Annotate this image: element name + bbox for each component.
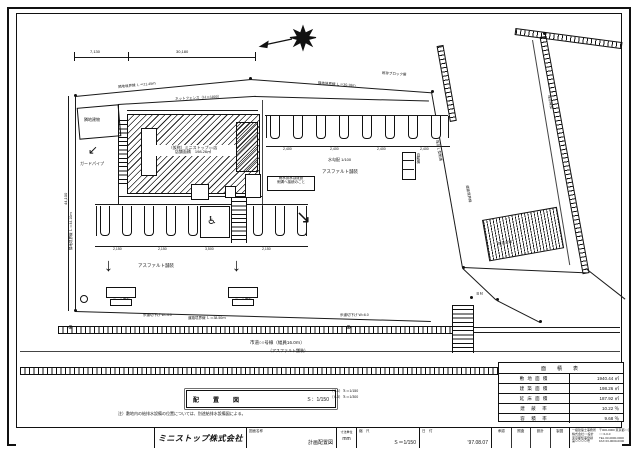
dimension-label: 2,400 xyxy=(283,148,292,152)
pole-sign-symbol xyxy=(80,295,88,303)
vending-machine xyxy=(402,152,416,180)
legend-footnote: 注）敷地内の給排水設備の位置については、別途給排水設備図による。 xyxy=(118,412,246,416)
pole-sign-base xyxy=(232,299,254,306)
boundary-point xyxy=(539,320,542,323)
parking-stall-divider xyxy=(166,206,176,236)
cell-label: 日 付 xyxy=(422,429,433,434)
vending-divider xyxy=(402,160,414,161)
row-label: 建 築 面 積 xyxy=(499,384,570,393)
flow-arrow-icon: ↓ xyxy=(232,256,241,274)
lot-divider-line xyxy=(262,100,263,212)
cell-value: Ｓ＝1/150 xyxy=(393,439,416,446)
boundary-point xyxy=(462,266,465,269)
parking-stall-divider xyxy=(362,116,372,139)
curb-line xyxy=(468,327,620,328)
dimension-line xyxy=(74,57,255,58)
dimension-label: 2,400 xyxy=(377,148,386,152)
legend-scale-note: （Ａ3）Ｓ＝1/300 xyxy=(330,396,358,400)
row-value: 1940.44 ㎡ xyxy=(570,374,623,383)
parking-stall-divider xyxy=(144,206,154,236)
boundary-line xyxy=(75,96,76,312)
survey-mark-icon: ⊕ xyxy=(68,325,73,331)
drawing-name-cell: 図面名称 計画配置図 xyxy=(247,428,337,448)
parking-stall-divider xyxy=(122,206,132,236)
curbcut-label: 歩道切下げ W=4.0 xyxy=(143,314,172,318)
dimension-label: 30,180 xyxy=(176,50,188,54)
paving-label: アスファルト舗装 xyxy=(138,264,174,269)
drainage-note-line: 側溝へ接続のこと xyxy=(268,181,314,185)
parking-stall-divider xyxy=(431,116,441,139)
parking-back-line xyxy=(95,204,308,205)
dimension-tick xyxy=(74,52,75,61)
office-line: 第００００号 xyxy=(572,440,596,444)
legend-box: 配 置 図 Ｓ：1/150 xyxy=(186,390,336,408)
crosswalk xyxy=(452,305,474,353)
road-center-line xyxy=(20,351,620,352)
office-cell: 一級建築士事務所 株式会社○○設計 東京都知事登録 第００００号 〒000-00… xyxy=(570,428,622,448)
table-row: 容 積 率 9.68 ％ xyxy=(499,414,623,423)
boundary-point xyxy=(496,298,499,301)
area-table: 面 積 表 敷 地 面 積 1940.44 ㎡ 建 築 面 積 198.26 ㎡… xyxy=(498,362,624,422)
row-label: 建 蔽 率 xyxy=(499,404,570,413)
row-label: 容 積 率 xyxy=(499,414,570,423)
table-row: 敷 地 面 積 1940.44 ㎡ xyxy=(499,374,623,384)
pole-sign-box: ポール看板 xyxy=(106,287,136,298)
area-table-title: 面 積 表 xyxy=(499,363,623,374)
cell-value: mm xyxy=(337,436,356,442)
parking-stall-divider xyxy=(385,116,395,139)
parking-stall-divider xyxy=(270,116,280,139)
site-plan-sheet: 7,130 30,180 隣地境界線 Ｌ＝21.45ｍ ネットフェンス（Ｈ＝18… xyxy=(0,0,640,453)
row-label: 延 床 面 積 xyxy=(499,394,570,403)
row-value: 9.68 ％ xyxy=(570,414,623,423)
parking-stall-divider xyxy=(293,116,303,139)
row-value: 198.26 ㎡ xyxy=(570,384,623,393)
road-name-label: 市道○○号線（幅員16.0ｍ） xyxy=(250,341,305,346)
parking-stall-divider xyxy=(188,206,198,236)
row-value: 187.92 ㎡ xyxy=(570,394,623,403)
parking-end-line xyxy=(96,206,97,236)
legend-scale-note: （Ａ1）Ｓ＝1/150 xyxy=(330,390,358,394)
legend-title: 配 置 図 xyxy=(193,395,243,404)
parking-stall-divider xyxy=(339,116,349,139)
slope-label: 水勾配 1/100 xyxy=(328,158,351,162)
flow-arrow-icon: ↓ xyxy=(104,256,113,274)
office-line: FAX 03-0000-0000 xyxy=(599,440,631,444)
stair-strip xyxy=(231,197,247,243)
flow-arrow-icon: ↙ xyxy=(88,144,98,156)
table-row: 建 築 面 積 198.26 ㎡ xyxy=(499,384,623,394)
dimension-tick xyxy=(128,52,129,61)
parking-stall-divider xyxy=(275,206,285,236)
row-value: 10.22 ％ xyxy=(570,404,623,413)
benchmark-label: ＢＭ xyxy=(476,293,483,297)
title-block: ミニストップ株式会社 図面名称 計画配置図 寸法単位 mm 縮 尺 Ｓ＝1/15… xyxy=(16,427,622,448)
cell-label: 寸法単位 xyxy=(337,430,356,434)
road-surface-label: （アスファルト舗装） xyxy=(268,349,308,353)
north-arrow-icon xyxy=(258,22,322,54)
pole-sign-base xyxy=(110,299,132,306)
dimension-label: 44,100 xyxy=(64,193,68,205)
dimension-line xyxy=(95,246,308,247)
cell-label: 図面名称 xyxy=(249,429,263,434)
cell-value: ’97.08.07 xyxy=(467,440,488,446)
guard-label: ガードパイプ xyxy=(80,162,104,166)
boundary-point xyxy=(431,90,434,93)
paving-label: アスファルト舗装 xyxy=(322,170,358,175)
boundary-point xyxy=(249,77,252,80)
boundary-point xyxy=(74,309,77,312)
flow-arrow-icon: ↘ xyxy=(296,208,311,226)
company-logo: ミニストップ株式会社 xyxy=(158,433,243,444)
dimension-tick xyxy=(255,52,256,61)
dimension-label: 3,500 xyxy=(205,248,214,252)
boundary-point xyxy=(74,94,77,97)
pole-sign-box: ポール看板 xyxy=(228,287,258,298)
approval-slot: 設計 xyxy=(531,428,551,448)
table-row: 延 床 面 積 187.92 ㎡ xyxy=(499,394,623,404)
cell-value: 計画配置図 xyxy=(308,439,333,446)
boundary-label: 隣地境界線 Ｌ＝44.10ｍ xyxy=(70,212,74,250)
date-cell: 日 付 ’97.08.07 xyxy=(420,428,492,448)
parking-stall-divider xyxy=(408,116,418,139)
legend-scale: Ｓ：1/150 xyxy=(306,396,329,403)
approval-cell: 承認 照査 設計 製図 xyxy=(492,428,570,448)
parking-end-line xyxy=(266,116,267,138)
boundary-label: 道路境界線 Ｌ＝38.50ｍ xyxy=(188,317,226,321)
drainage-note-box: 雨水排水は既設 側溝へ接続のこと xyxy=(267,176,315,191)
canopy-line xyxy=(127,110,258,111)
side-porch xyxy=(245,174,261,198)
parking-stall-divider xyxy=(316,116,326,139)
entrance-vestibule xyxy=(191,184,209,200)
sidewalk-strip xyxy=(58,326,468,334)
survey-mark-icon: ⊕ xyxy=(346,325,351,331)
neighbor-label: 隣地建物 xyxy=(84,118,100,122)
machine-room xyxy=(236,122,258,172)
building-label: （仮称）ミニストップ○○店 店舗面積 198.26㎡ xyxy=(150,145,236,156)
curb-line xyxy=(468,332,620,333)
logo-cell: ミニストップ株式会社 xyxy=(155,428,247,448)
curbcut-label: 歩道切下げ W=6.0 xyxy=(340,314,369,318)
vending-divider xyxy=(402,169,414,170)
dimension-label: 7,130 xyxy=(90,50,100,54)
dimension-label: 2,400 xyxy=(330,148,339,152)
building-area: 店舗面積 198.26㎡ xyxy=(150,150,236,154)
unit-cell: 寸法単位 mm xyxy=(337,428,357,448)
approval-slot: 製図 xyxy=(551,428,570,448)
parking-stall-divider xyxy=(253,206,263,236)
boundary-point xyxy=(543,32,546,35)
table-row: 建 蔽 率 10.22 ％ xyxy=(499,404,623,414)
dimension-label: 2,150 xyxy=(262,248,271,252)
benchmark-dot xyxy=(470,296,473,299)
scale-cell: 縮 尺 Ｓ＝1/150 xyxy=(357,428,420,448)
approval-slot: 承認 xyxy=(492,428,512,448)
dimension-label: 2,400 xyxy=(420,148,429,152)
row-label: 敷 地 面 積 xyxy=(499,374,570,383)
parking-stall-divider xyxy=(100,206,110,236)
revision-cell xyxy=(16,428,155,448)
cell-label: 縮 尺 xyxy=(359,429,370,434)
vending-label: 自販機 xyxy=(416,153,420,164)
dimension-label: 2,150 xyxy=(158,248,167,252)
approval-slot: 照査 xyxy=(512,428,532,448)
wheelchair-icon: ♿ xyxy=(207,216,217,227)
dimension-label: 2,150 xyxy=(113,248,122,252)
